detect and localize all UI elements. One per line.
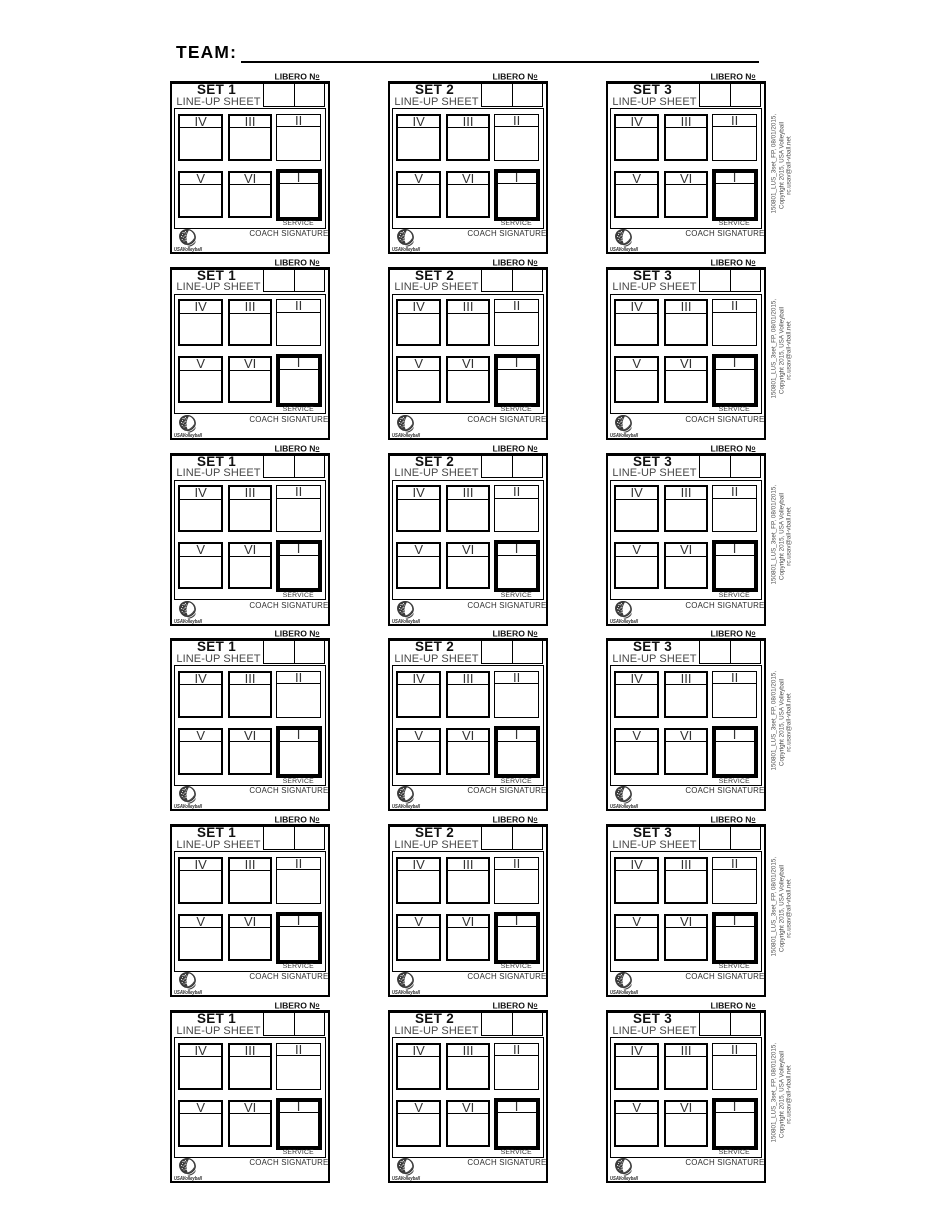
svg-text:USAVolleyball: USAVolleyball [392,247,420,253]
svg-text:USAVolleyball: USAVolleyball [392,990,420,996]
svg-text:USAVolleyball: USAVolleyball [610,619,638,625]
svg-text:USAVolleyball: USAVolleyball [610,1176,638,1182]
svg-text:USAVolleyball: USAVolleyball [392,1176,420,1182]
svg-text:USAVolleyball: USAVolleyball [610,804,638,810]
svg-text:USAVolleyball: USAVolleyball [174,804,202,810]
svg-text:USAVolleyball: USAVolleyball [174,433,202,439]
svg-text:USAVolleyball: USAVolleyball [610,990,638,996]
svg-text:USAVolleyball: USAVolleyball [392,433,420,439]
svg-text:USAVolleyball: USAVolleyball [174,1176,202,1182]
svg-text:USAVolleyball: USAVolleyball [610,247,638,253]
svg-text:USAVolleyball: USAVolleyball [174,619,202,625]
svg-text:USAVolleyball: USAVolleyball [174,247,202,253]
svg-text:USAVolleyball: USAVolleyball [392,804,420,810]
svg-text:USAVolleyball: USAVolleyball [610,433,638,439]
svg-text:USAVolleyball: USAVolleyball [392,619,420,625]
svg-text:USAVolleyball: USAVolleyball [174,990,202,996]
